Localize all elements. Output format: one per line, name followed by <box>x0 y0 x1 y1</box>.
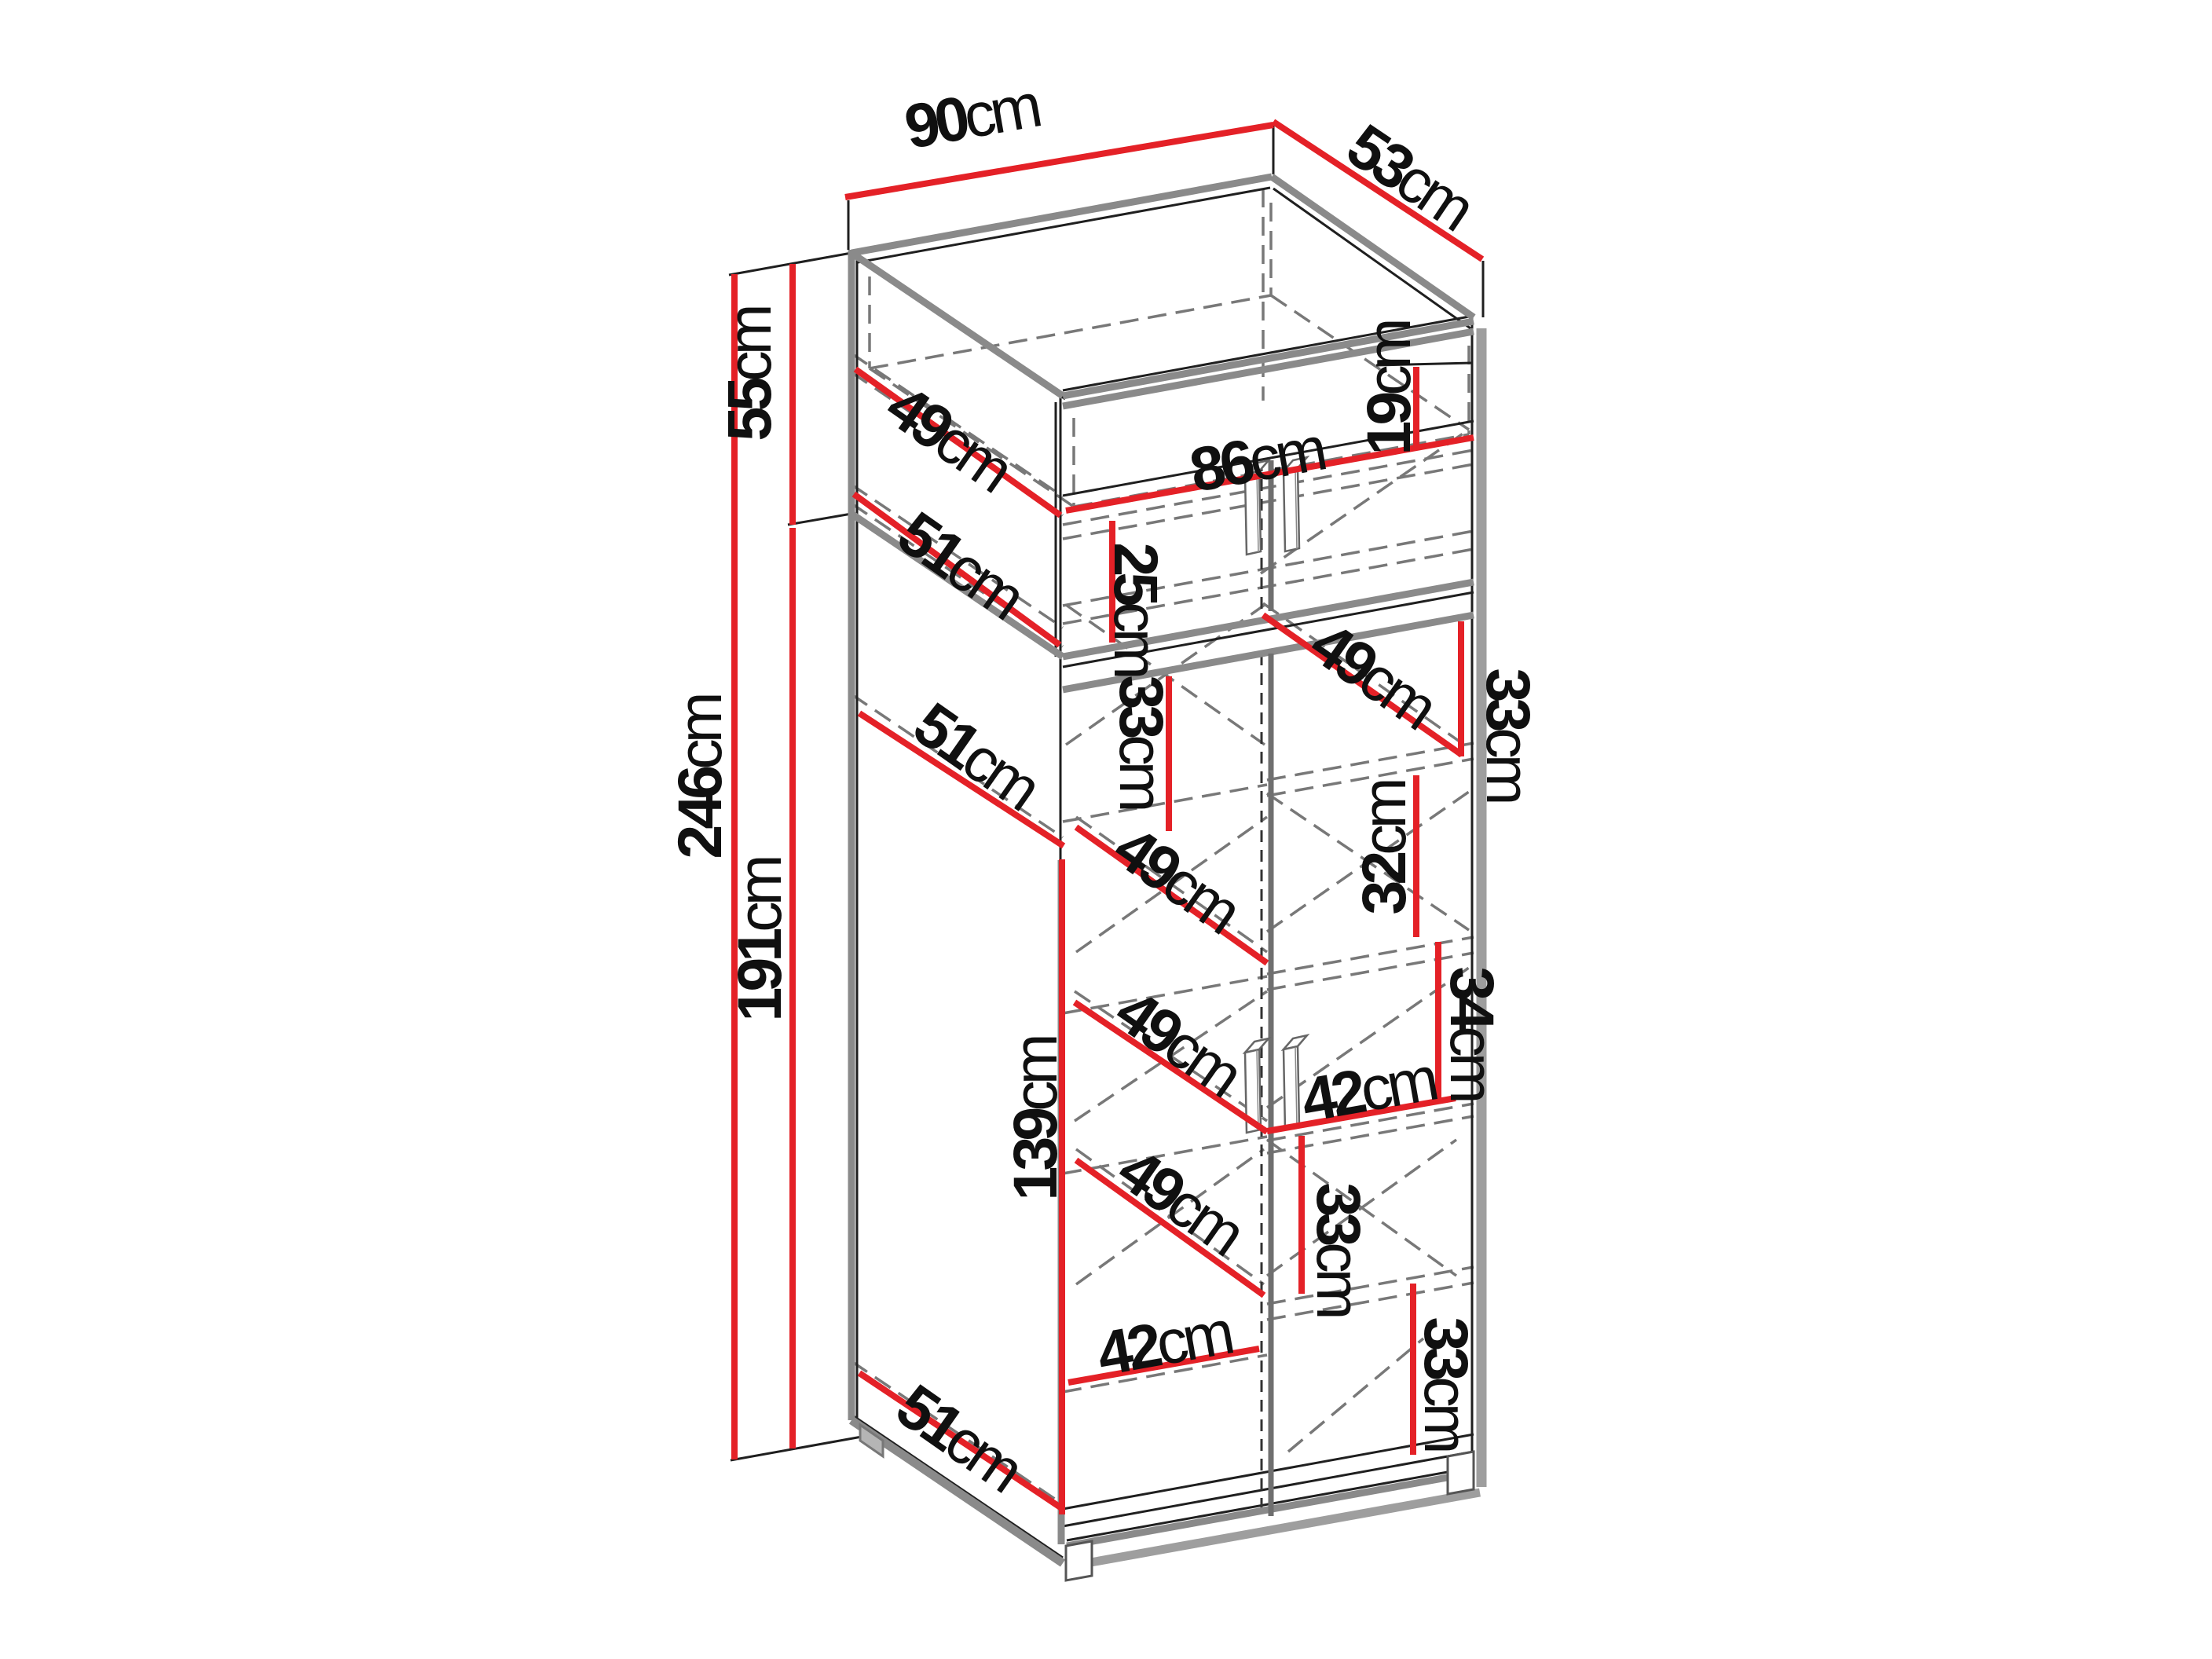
svg-text:33cm: 33cm <box>1304 1182 1374 1316</box>
svg-text:191cm: 191cm <box>724 858 794 1021</box>
svg-text:33cm: 33cm <box>1474 668 1544 801</box>
svg-text:33cm: 33cm <box>1412 1317 1481 1450</box>
svg-text:19cm: 19cm <box>1353 321 1423 455</box>
svg-text:34cm: 34cm <box>1437 966 1507 1100</box>
svg-text:25cm: 25cm <box>1101 542 1171 676</box>
svg-text:55cm: 55cm <box>714 307 784 441</box>
svg-text:139cm: 139cm <box>1000 1037 1070 1200</box>
svg-text:246cm: 246cm <box>665 695 734 859</box>
svg-text:32cm: 32cm <box>1349 781 1419 914</box>
svg-text:33cm: 33cm <box>1107 675 1177 808</box>
